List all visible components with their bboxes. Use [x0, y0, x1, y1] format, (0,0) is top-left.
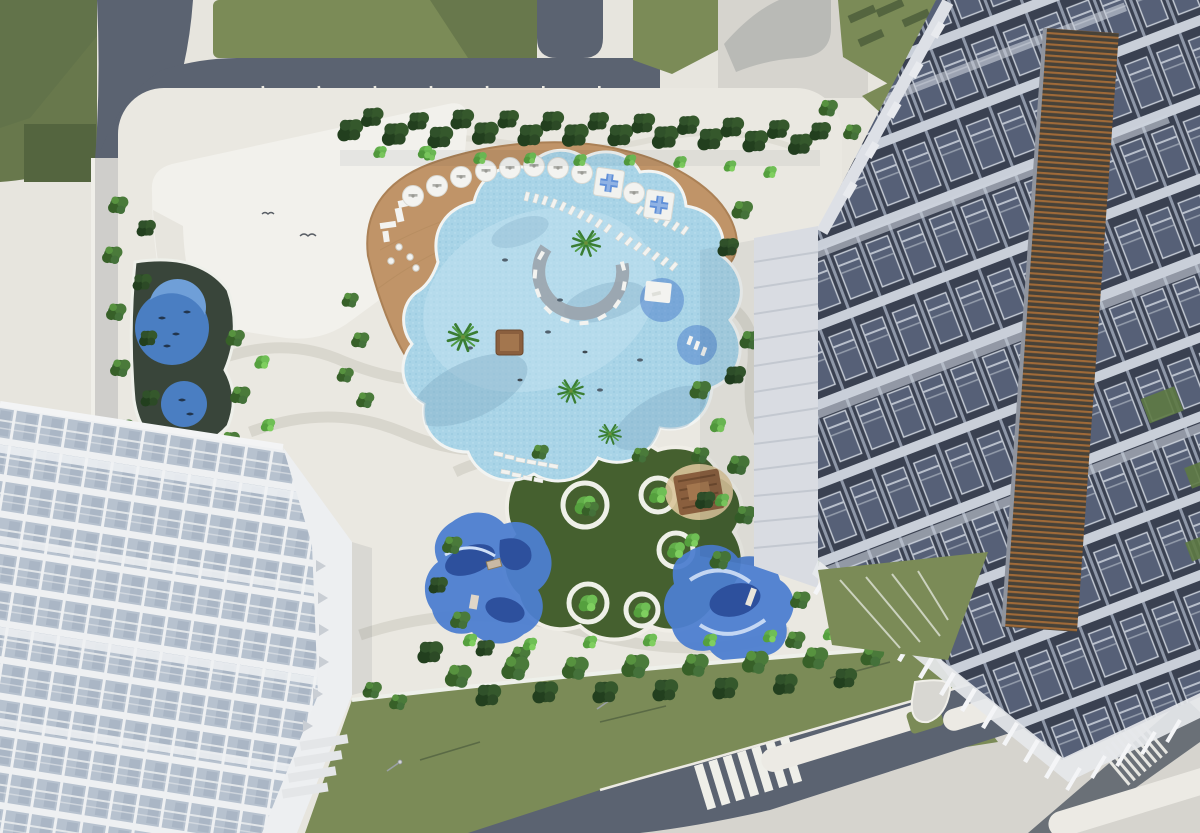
cabana-platform — [593, 167, 625, 199]
hedge-block — [24, 124, 96, 182]
splash-circle-small — [161, 381, 207, 427]
cabana-platform — [643, 189, 675, 221]
aerial-render: Aerial 3D rendering of a residential com… — [0, 0, 1200, 833]
scene-canvas: Aerial 3D rendering of a residential com… — [0, 0, 1200, 833]
road-north-spur — [537, 0, 603, 58]
pool-pavilion — [496, 330, 523, 355]
